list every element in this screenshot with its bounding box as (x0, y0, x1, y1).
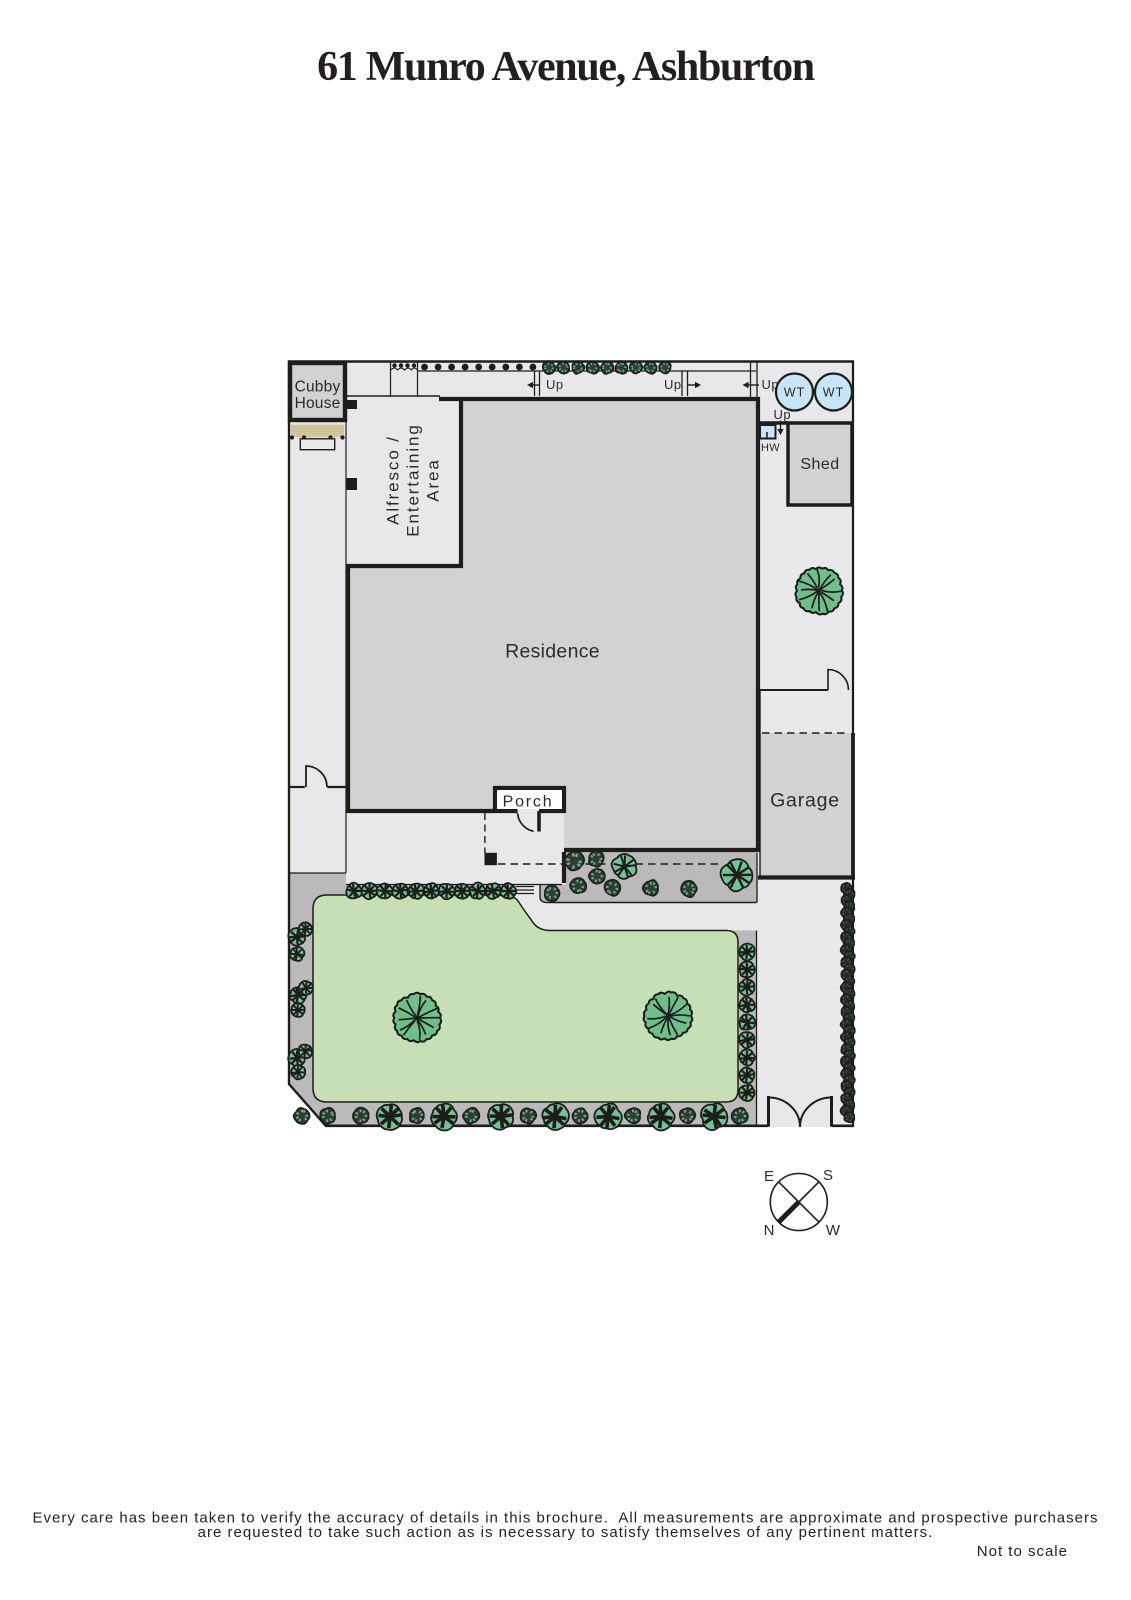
svg-text:Cubby: Cubby (295, 379, 341, 396)
svg-text:Residence: Residence (505, 641, 600, 663)
svg-text:WT: WT (823, 386, 844, 400)
svg-text:Shed: Shed (800, 456, 839, 473)
svg-text:E: E (764, 1168, 774, 1185)
svg-text:Area: Area (424, 458, 443, 502)
svg-text:W: W (826, 1222, 841, 1239)
svg-text:Alfresco /: Alfresco / (384, 435, 403, 525)
svg-text:WT: WT (784, 386, 805, 400)
svg-text:Garage: Garage (770, 790, 840, 812)
svg-text:61 Munro Avenue, Ashburton: 61 Munro Avenue, Ashburton (317, 44, 815, 90)
svg-text:S: S (823, 1167, 833, 1184)
svg-text:Not to scale: Not to scale (977, 1543, 1068, 1560)
svg-text:are requested to take such act: are requested to take such action as is … (198, 1524, 934, 1541)
svg-text:Porch: Porch (503, 794, 554, 811)
svg-text:Up: Up (664, 377, 682, 392)
svg-text:HW: HW (761, 442, 780, 454)
svg-text:House: House (295, 395, 341, 412)
svg-text:Up: Up (774, 407, 792, 422)
svg-text:Up: Up (546, 377, 564, 392)
svg-text:N: N (764, 1222, 775, 1239)
svg-text:Entertaining: Entertaining (404, 423, 423, 537)
